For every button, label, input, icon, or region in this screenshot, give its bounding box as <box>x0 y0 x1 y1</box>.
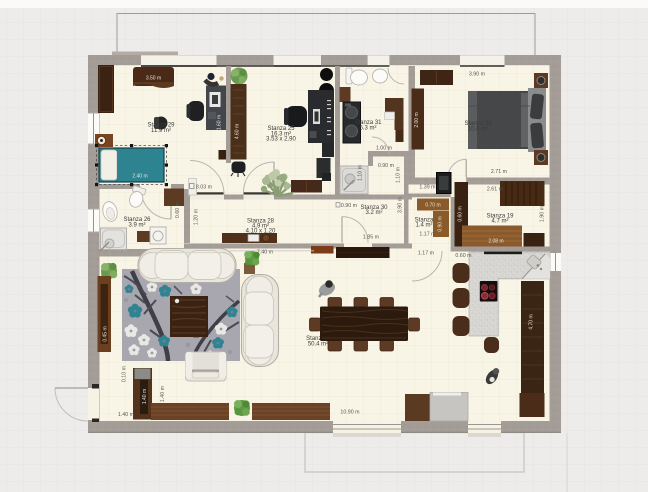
svg-text:8.03 m: 8.03 m <box>196 185 213 191</box>
svg-text:4.70 m: 4.70 m <box>529 314 535 329</box>
svg-text:1.20 m: 1.20 m <box>194 208 200 225</box>
svg-text:1.40 m: 1.40 m <box>160 385 166 402</box>
svg-text:3.9 m²: 3.9 m² <box>128 222 145 228</box>
svg-text:0.60 m: 0.60 m <box>455 253 472 259</box>
svg-text:0.10 m: 0.10 m <box>122 365 128 382</box>
svg-text:5.3 m²: 5.3 m² <box>359 125 376 131</box>
svg-text:4.7 m²: 4.7 m² <box>491 219 508 225</box>
svg-text:3.53 x 2.90: 3.53 x 2.90 <box>266 137 296 143</box>
svg-text:3.90 m: 3.90 m <box>398 196 404 213</box>
svg-text:1.60 m: 1.60 m <box>217 115 223 130</box>
svg-text:10.6 m²: 10.6 m² <box>468 126 488 132</box>
svg-text:0.70 m: 0.70 m <box>425 203 440 209</box>
svg-text:2.71 m: 2.71 m <box>491 169 508 175</box>
svg-text:1.10 m: 1.10 m <box>358 164 364 181</box>
svg-text:2.00 m: 2.00 m <box>414 112 420 127</box>
svg-text:1.17 m: 1.17 m <box>419 232 436 238</box>
svg-text:3.50 m: 3.50 m <box>146 76 161 82</box>
svg-text:0.90 m: 0.90 m <box>341 203 358 209</box>
svg-text:2.61 m: 2.61 m <box>487 187 504 193</box>
svg-text:0.90 m: 0.90 m <box>438 216 444 231</box>
svg-text:3.90 m: 3.90 m <box>469 72 486 78</box>
svg-text:1.00 m: 1.00 m <box>376 146 393 152</box>
svg-text:2.08 m: 2.08 m <box>488 239 503 245</box>
svg-text:50.4 m²: 50.4 m² <box>308 341 328 347</box>
svg-text:0.60 m: 0.60 m <box>458 206 464 221</box>
svg-text:1.40 m: 1.40 m <box>118 412 135 418</box>
svg-text:4.10 x 1.20: 4.10 x 1.20 <box>246 229 276 235</box>
svg-text:11.9 m²: 11.9 m² <box>151 128 171 134</box>
svg-text:1.39 m: 1.39 m <box>419 185 436 191</box>
svg-text:3.2 m²: 3.2 m² <box>365 210 382 216</box>
svg-text:0.45 m: 0.45 m <box>103 326 109 341</box>
svg-text:1.10 m: 1.10 m <box>396 166 402 183</box>
svg-text:1.17 m: 1.17 m <box>418 251 435 257</box>
svg-text:1.40 m: 1.40 m <box>142 389 148 404</box>
svg-text:4.60 m: 4.60 m <box>235 124 241 139</box>
svg-text:7.40 m: 7.40 m <box>257 250 274 256</box>
svg-text:1.4 m²: 1.4 m² <box>415 223 432 229</box>
svg-text:1.85 m: 1.85 m <box>363 235 380 241</box>
svg-text:2.40 m: 2.40 m <box>132 174 147 180</box>
svg-text:0.90 m: 0.90 m <box>378 163 395 169</box>
svg-text:1.90 m: 1.90 m <box>540 205 546 222</box>
svg-text:0.60 m: 0.60 m <box>175 201 181 218</box>
svg-text:10.90 m: 10.90 m <box>340 410 360 416</box>
